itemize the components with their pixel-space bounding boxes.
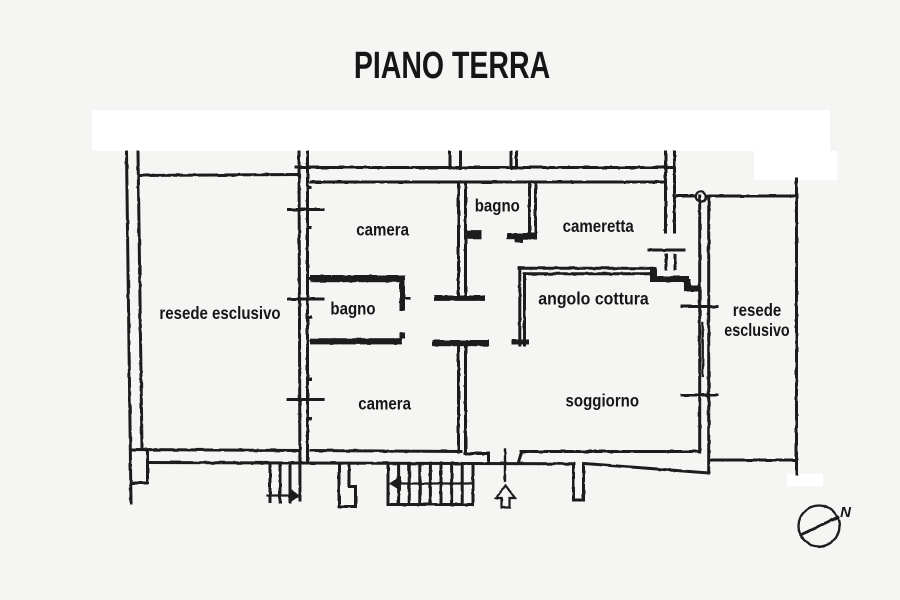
svg-text:resede esclusivo: resede esclusivo	[159, 304, 280, 323]
svg-text:camera: camera	[356, 220, 410, 239]
svg-text:esclusivo: esclusivo	[724, 322, 790, 341]
svg-text:bagno: bagno	[330, 299, 375, 318]
svg-text:camera: camera	[358, 394, 412, 413]
svg-text:PIANO TERRA: PIANO TERRA	[354, 45, 550, 87]
svg-text:N: N	[840, 504, 852, 521]
svg-text:soggiorno: soggiorno	[566, 391, 640, 410]
svg-text:angolo cottura: angolo cottura	[538, 289, 649, 309]
svg-text:resede: resede	[733, 301, 782, 320]
svg-text:cameretta: cameretta	[563, 217, 635, 236]
svg-text:bagno: bagno	[475, 196, 520, 215]
